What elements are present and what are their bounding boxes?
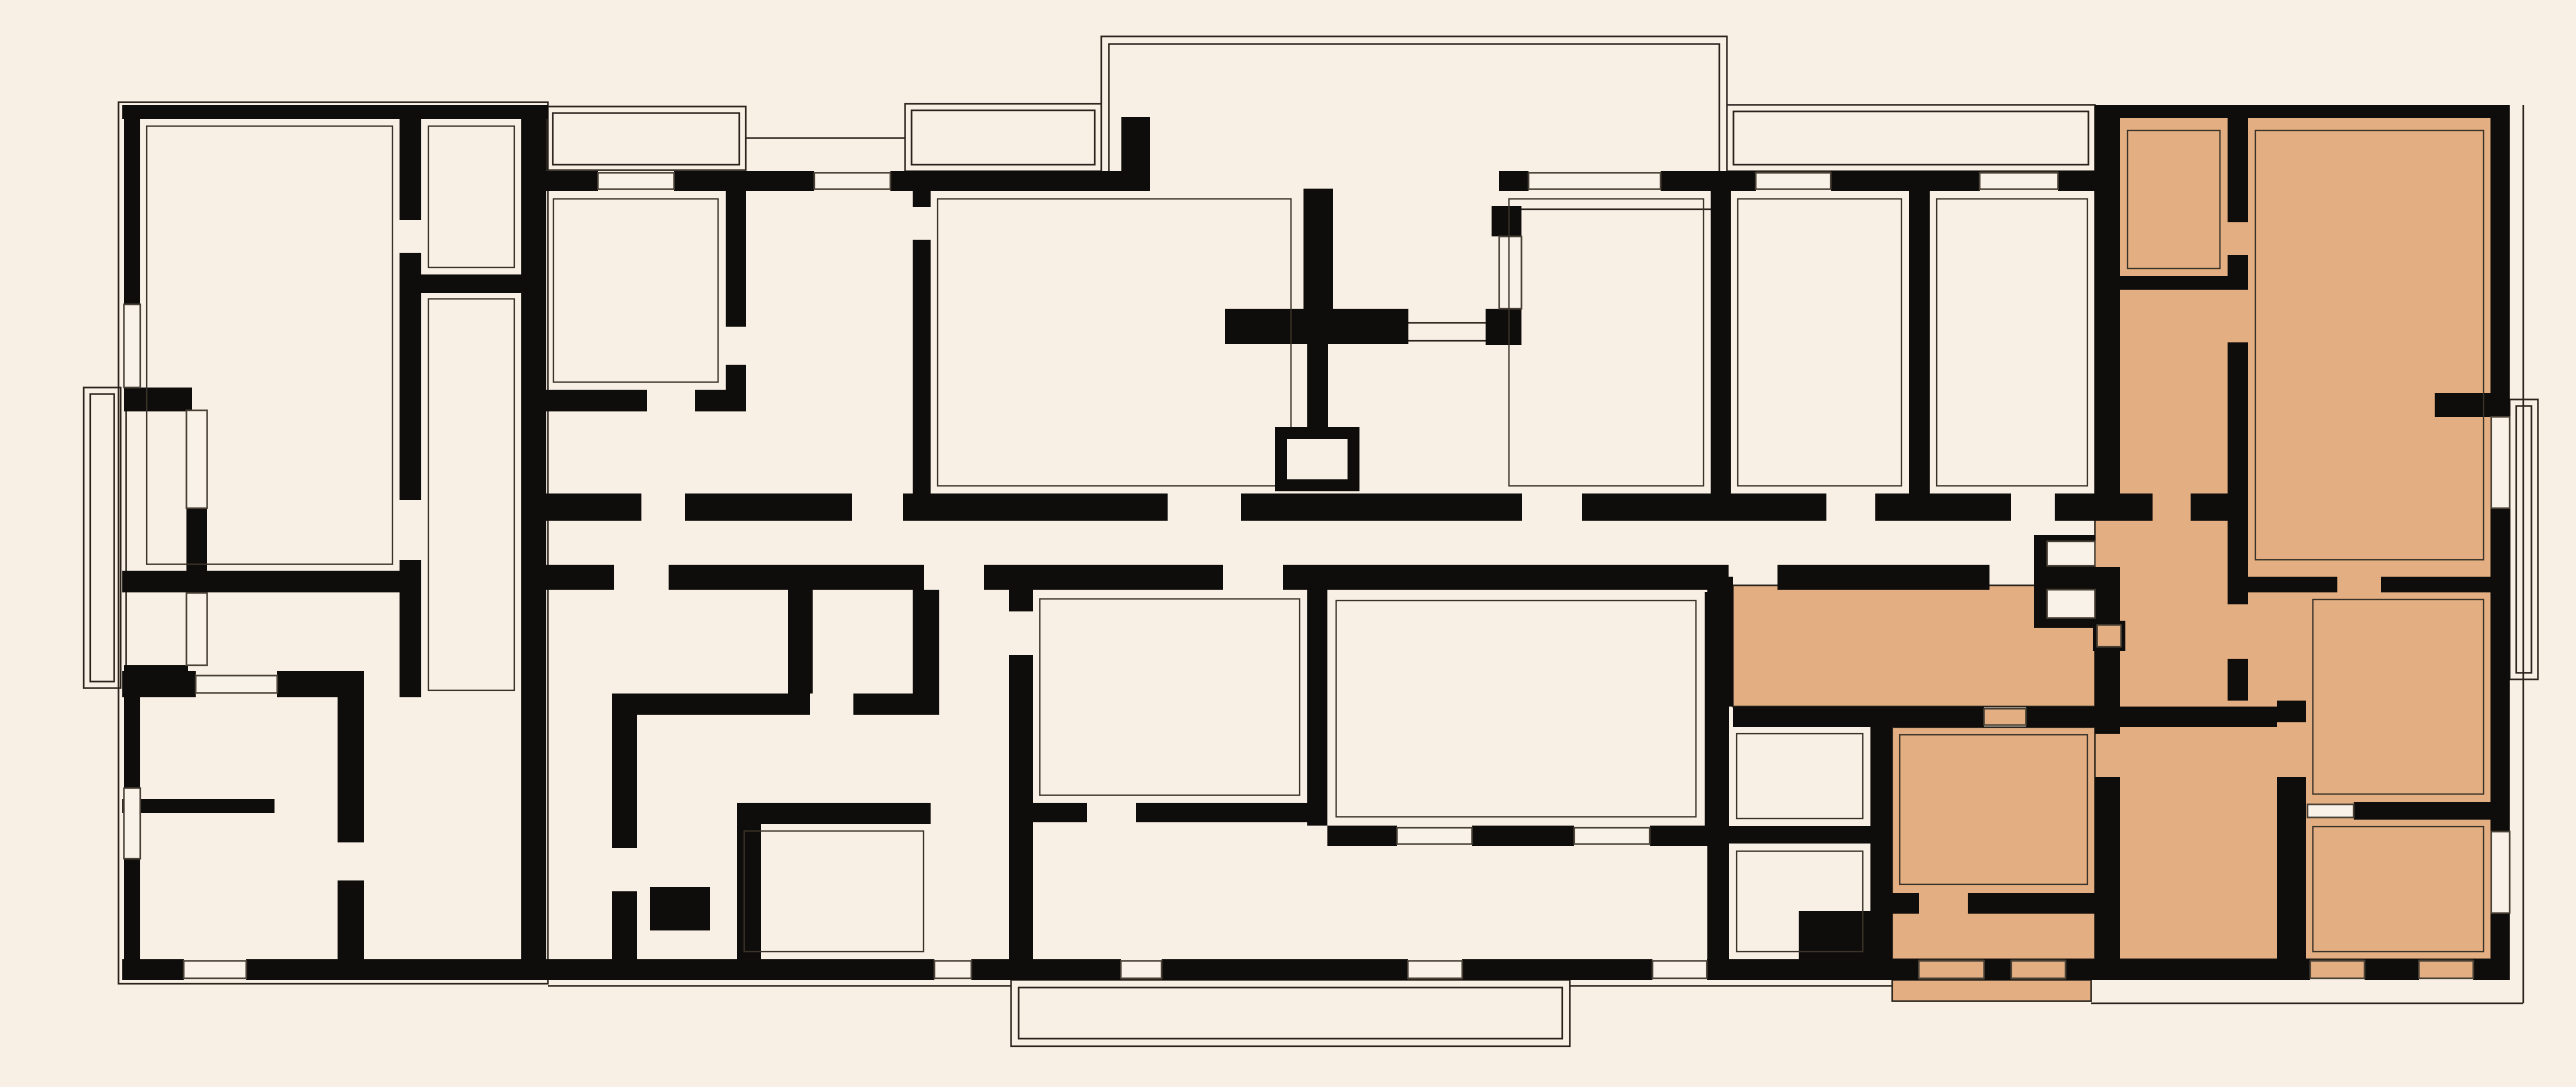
wall-segment	[1870, 727, 1892, 959]
wall-segment	[246, 959, 934, 980]
wall-segment	[2354, 802, 2491, 820]
wall-segment	[913, 590, 939, 694]
wall-segment	[338, 880, 364, 959]
wall-segment	[124, 388, 192, 411]
wall-segment	[546, 171, 598, 191]
wall-segment	[1968, 893, 2095, 914]
window-opening	[1652, 961, 1707, 978]
window-opening-highlighted	[2310, 961, 2365, 978]
wall-segment	[124, 688, 140, 788]
wall-segment	[669, 565, 924, 590]
window-opening	[196, 676, 277, 693]
wall-segment	[338, 697, 364, 842]
window-opening	[814, 173, 890, 189]
wall-segment	[1486, 309, 1521, 345]
wall-segment	[1875, 493, 2011, 521]
wall-segment	[2365, 959, 2419, 980]
wall-segment	[737, 824, 761, 959]
wall-segment	[2248, 577, 2337, 592]
floor-plan-page	[0, 0, 2576, 1087]
wall-segment	[122, 799, 275, 813]
window-opening	[2491, 417, 2510, 508]
wall-segment	[1733, 707, 1984, 727]
wall-segment	[122, 571, 400, 592]
wall-segment	[1009, 655, 1033, 979]
window-opening	[2047, 590, 2095, 618]
door-frame-inner	[1287, 439, 1348, 479]
window-opening	[1529, 173, 1661, 189]
wall-segment	[1033, 803, 1087, 822]
wall-segment	[2026, 707, 2277, 727]
wall-segment	[1327, 826, 1397, 846]
wall-segment	[1777, 565, 1989, 590]
window-opening-highlighted	[1984, 709, 2026, 725]
window-opening	[1121, 961, 1162, 978]
wall-segment	[612, 891, 637, 959]
window-opening	[124, 304, 140, 388]
wall-segment	[1650, 826, 1707, 846]
wall-segment	[2277, 777, 2306, 959]
window-opening-highlighted	[1919, 961, 1984, 978]
window-opening	[1408, 961, 1462, 978]
wall-segment	[1225, 309, 1408, 344]
window-opening	[1980, 173, 2058, 189]
window-opening	[2307, 804, 2354, 817]
wall-segment	[2191, 493, 2248, 521]
window-opening-highlighted	[2419, 961, 2473, 978]
wall-segment	[1892, 893, 1919, 914]
wall-segment	[1707, 826, 1870, 844]
wall-segment	[1241, 493, 1522, 521]
wall-segment	[2473, 959, 2510, 980]
floor-plan-drawing	[0, 0, 2576, 1087]
wall-segment	[122, 959, 184, 980]
wall-segment	[546, 565, 614, 590]
wall-segment	[2228, 659, 2248, 701]
wall-segment	[674, 171, 814, 191]
wall-segment	[650, 887, 710, 930]
wall-segment	[1582, 493, 1826, 521]
wall-segment	[2120, 493, 2153, 521]
wall-segment	[1009, 590, 1033, 611]
wall-segment	[1492, 206, 1521, 236]
wall-segment	[1909, 191, 1930, 493]
wall-segment	[2491, 913, 2510, 959]
door-frame-layer	[1275, 427, 1359, 491]
wall-segment	[1831, 171, 1980, 191]
wall-segment	[1162, 959, 1408, 980]
wall-segment	[1472, 826, 1574, 846]
wall-segment	[124, 119, 140, 304]
wall-segment	[1136, 803, 1307, 822]
wall-segment	[726, 191, 746, 327]
wall-segment	[400, 293, 421, 500]
wall-segment	[971, 959, 1121, 980]
window-opening	[2491, 832, 2510, 913]
wall-segment	[1462, 959, 1652, 980]
window-opening	[1397, 828, 1472, 844]
window-opening-highlighted	[2011, 961, 2066, 978]
window-opening	[598, 173, 674, 189]
wall-segment	[122, 105, 548, 119]
wall-segment	[1121, 117, 1150, 191]
wall-segment	[788, 590, 813, 694]
wall-segment	[400, 253, 421, 274]
wall-segment	[124, 859, 140, 959]
wall-segment	[2120, 276, 2248, 290]
wall-segment	[1711, 191, 1731, 493]
window-opening	[1756, 173, 1831, 189]
wall-segment	[2277, 701, 2306, 722]
wall-segment	[1499, 171, 1529, 191]
wall-segment	[521, 119, 546, 959]
wall-segment	[2095, 777, 2120, 959]
wall-segment	[2381, 577, 2491, 592]
wall-segment	[1307, 590, 1327, 826]
wall-segment	[2095, 117, 2120, 521]
wall-segment	[1303, 189, 1333, 309]
wall-segment	[853, 694, 939, 715]
window-opening	[1499, 236, 1521, 309]
window-opening	[2047, 541, 2095, 566]
wall-segment	[637, 694, 810, 715]
window-opening	[186, 593, 207, 665]
highlighted-apartment-region	[1892, 980, 2091, 1001]
wall-segment	[1661, 171, 1756, 191]
wall-segment	[2228, 255, 2248, 276]
window-opening	[1574, 828, 1650, 844]
wall-segment	[400, 274, 546, 293]
wall-segment	[546, 493, 641, 521]
wall-segment	[400, 560, 421, 697]
wall-segment	[2435, 393, 2510, 417]
wall-segment	[913, 191, 931, 207]
wall-segment	[903, 493, 1168, 521]
wall-segment	[400, 119, 421, 220]
wall-segment	[2055, 493, 2095, 521]
window-opening-highlighted	[2097, 625, 2121, 647]
wall-segment	[737, 803, 931, 824]
wall-segment	[913, 240, 931, 493]
wall-segment	[1705, 592, 1724, 826]
window-opening	[186, 410, 207, 508]
wall-segment	[546, 390, 647, 411]
wall-segment	[2066, 959, 2310, 980]
wall-segment	[1283, 565, 1729, 590]
window-opening	[934, 961, 971, 978]
wall-segment	[695, 390, 746, 411]
highlighted-apartment-region	[1892, 727, 2095, 959]
wall-segment	[1707, 959, 1919, 980]
wall-segment	[277, 671, 364, 697]
wall-segment	[2228, 117, 2248, 222]
wall-segment	[612, 694, 637, 848]
wall-segment	[2491, 118, 2510, 393]
wall-segment	[890, 171, 1140, 191]
window-opening	[124, 788, 140, 859]
wall-segment	[685, 493, 852, 521]
wall-segment	[2095, 105, 2510, 118]
wall-segment	[1307, 344, 1328, 427]
wall-segment	[2058, 171, 2095, 191]
wall-segment	[984, 565, 1223, 590]
window-opening	[184, 961, 246, 978]
wall-segment	[726, 365, 746, 390]
wall-segment	[122, 671, 196, 697]
wall-segment	[2228, 342, 2248, 604]
wall-segment	[1984, 959, 2011, 980]
wall-segment	[2491, 508, 2510, 832]
